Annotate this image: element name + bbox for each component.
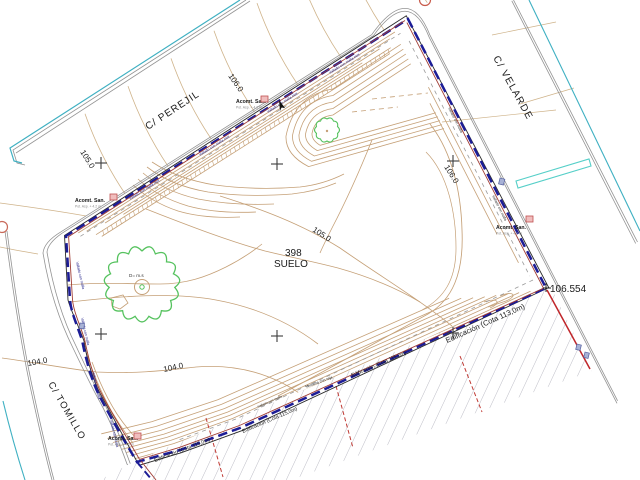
svg-text:Acomt. San.: Acomt. San. [496,225,527,231]
svg-text:Acomt. San.: Acomt. San. [75,198,106,204]
svg-text:SUELO: SUELO [274,259,308,270]
svg-text:Pot. Asp. + 4.2 m: Pot. Asp. + 4.2 m [108,443,134,447]
svg-text:398: 398 [285,248,302,259]
svg-text:D= m.s: D= m.s [129,273,144,278]
svg-text:Pot. Asp. + 4.2 m: Pot. Asp. + 4.2 m [236,106,262,110]
svg-text:Pot. Asp. + 4.2 m: Pot. Asp. + 4.2 m [496,232,522,236]
svg-text:Pot. Asp. + 4.2 m: Pot. Asp. + 4.2 m [75,205,101,209]
svg-text:106.554: 106.554 [550,284,587,295]
